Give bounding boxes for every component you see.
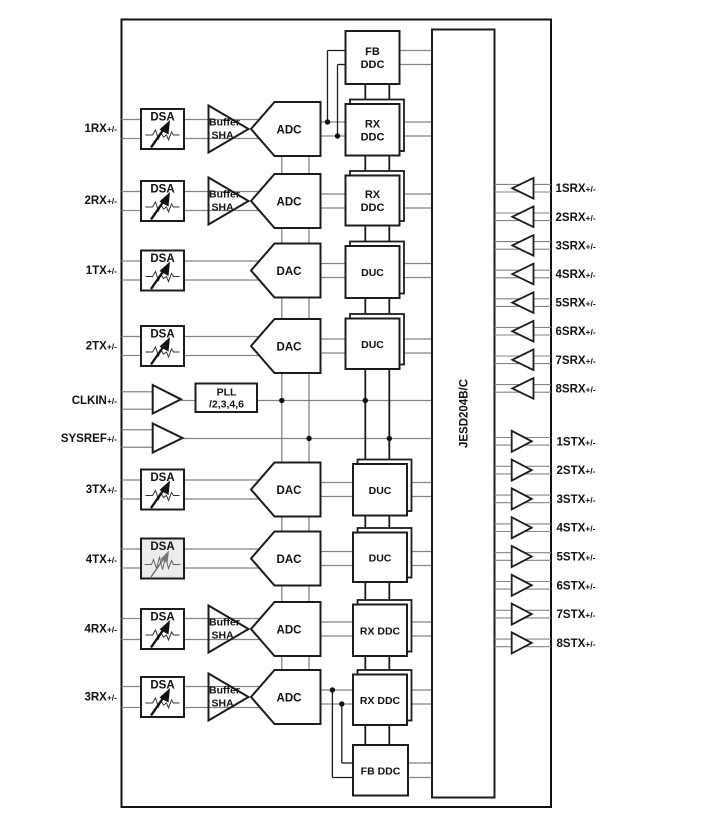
svg-text:SHA: SHA (212, 630, 235, 642)
svg-text:DSA: DSA (150, 472, 174, 484)
svg-text:DSA: DSA (150, 680, 174, 692)
svg-text:2TX+/-: 2TX+/- (86, 341, 117, 353)
svg-text:SYSREF+/-: SYSREF+/- (61, 433, 117, 445)
svg-text:1STX+/-: 1STX+/- (557, 436, 596, 448)
svg-text:DUC: DUC (369, 552, 392, 564)
svg-text:5SRX+/-: 5SRX+/- (556, 298, 596, 310)
svg-text:6STX+/-: 6STX+/- (557, 580, 596, 592)
svg-text:RX: RX (365, 118, 381, 130)
svg-text:SHA: SHA (212, 698, 235, 710)
svg-text:DAC: DAC (277, 485, 302, 497)
svg-text:ADC: ADC (277, 197, 302, 209)
svg-text:ADC: ADC (277, 693, 302, 705)
svg-text:DSA: DSA (150, 329, 174, 341)
svg-text:RX DDC: RX DDC (360, 625, 401, 637)
svg-text:1RX+/-: 1RX+/- (84, 123, 117, 135)
svg-text:Buffer: Buffer (209, 685, 240, 697)
svg-text:Buffer: Buffer (209, 117, 240, 129)
svg-text:2RX+/-: 2RX+/- (84, 195, 117, 207)
svg-text:CLKIN+/-: CLKIN+/- (72, 395, 117, 407)
svg-text:DAC: DAC (277, 266, 302, 278)
svg-text:DUC: DUC (361, 339, 384, 351)
svg-text:FB DDC: FB DDC (361, 765, 401, 777)
svg-text:7SRX+/-: 7SRX+/- (556, 355, 596, 367)
svg-text:5STX+/-: 5STX+/- (557, 552, 596, 564)
svg-text:SHA: SHA (212, 202, 235, 214)
svg-text:7STX+/-: 7STX+/- (557, 609, 596, 621)
svg-text:Buffer: Buffer (209, 617, 240, 629)
svg-text:2SRX+/-: 2SRX+/- (556, 212, 596, 224)
svg-text:2STX+/-: 2STX+/- (557, 465, 596, 477)
svg-text:3RX+/-: 3RX+/- (84, 692, 117, 704)
svg-text:DSA: DSA (150, 541, 174, 553)
svg-text:DDC: DDC (361, 131, 385, 143)
svg-text:3STX+/-: 3STX+/- (557, 494, 596, 506)
svg-text:Buffer: Buffer (209, 189, 240, 201)
svg-text:8SRX+/-: 8SRX+/- (556, 383, 596, 395)
svg-text:ADC: ADC (277, 125, 302, 137)
svg-text:4TX+/-: 4TX+/- (86, 554, 117, 566)
svg-text:4SRX+/-: 4SRX+/- (556, 269, 596, 281)
svg-text:DDC: DDC (361, 202, 385, 214)
svg-text:RX: RX (365, 189, 381, 201)
svg-text:DSA: DSA (150, 612, 174, 624)
svg-text:DAC: DAC (277, 554, 302, 566)
svg-text:DSA: DSA (150, 184, 174, 196)
svg-text:3SRX+/-: 3SRX+/- (556, 240, 596, 252)
svg-text:RX DDC: RX DDC (360, 695, 401, 707)
svg-text:1TX+/-: 1TX+/- (86, 265, 117, 277)
svg-text:4RX+/-: 4RX+/- (84, 624, 117, 636)
svg-text:ADC: ADC (277, 625, 302, 637)
svg-text:3TX+/-: 3TX+/- (86, 484, 117, 496)
svg-text:8STX+/-: 8STX+/- (557, 638, 596, 650)
svg-text:SHA: SHA (212, 130, 235, 142)
svg-text:FB: FB (365, 46, 380, 58)
svg-text:DSA: DSA (150, 112, 174, 124)
svg-text:6SRX+/-: 6SRX+/- (556, 326, 596, 338)
svg-text:DUC: DUC (369, 485, 392, 497)
svg-text:DSA: DSA (150, 253, 174, 265)
svg-text:PLL: PLL (217, 387, 237, 399)
svg-text:/2,3,4,6: /2,3,4,6 (209, 399, 244, 411)
svg-text:DAC: DAC (277, 342, 302, 354)
svg-text:JESD204B/C: JESD204B/C (459, 379, 471, 448)
svg-text:1SRX+/-: 1SRX+/- (556, 183, 596, 195)
svg-text:DDC: DDC (361, 59, 385, 71)
svg-text:DUC: DUC (361, 267, 384, 279)
svg-text:4STX+/-: 4STX+/- (557, 523, 596, 535)
